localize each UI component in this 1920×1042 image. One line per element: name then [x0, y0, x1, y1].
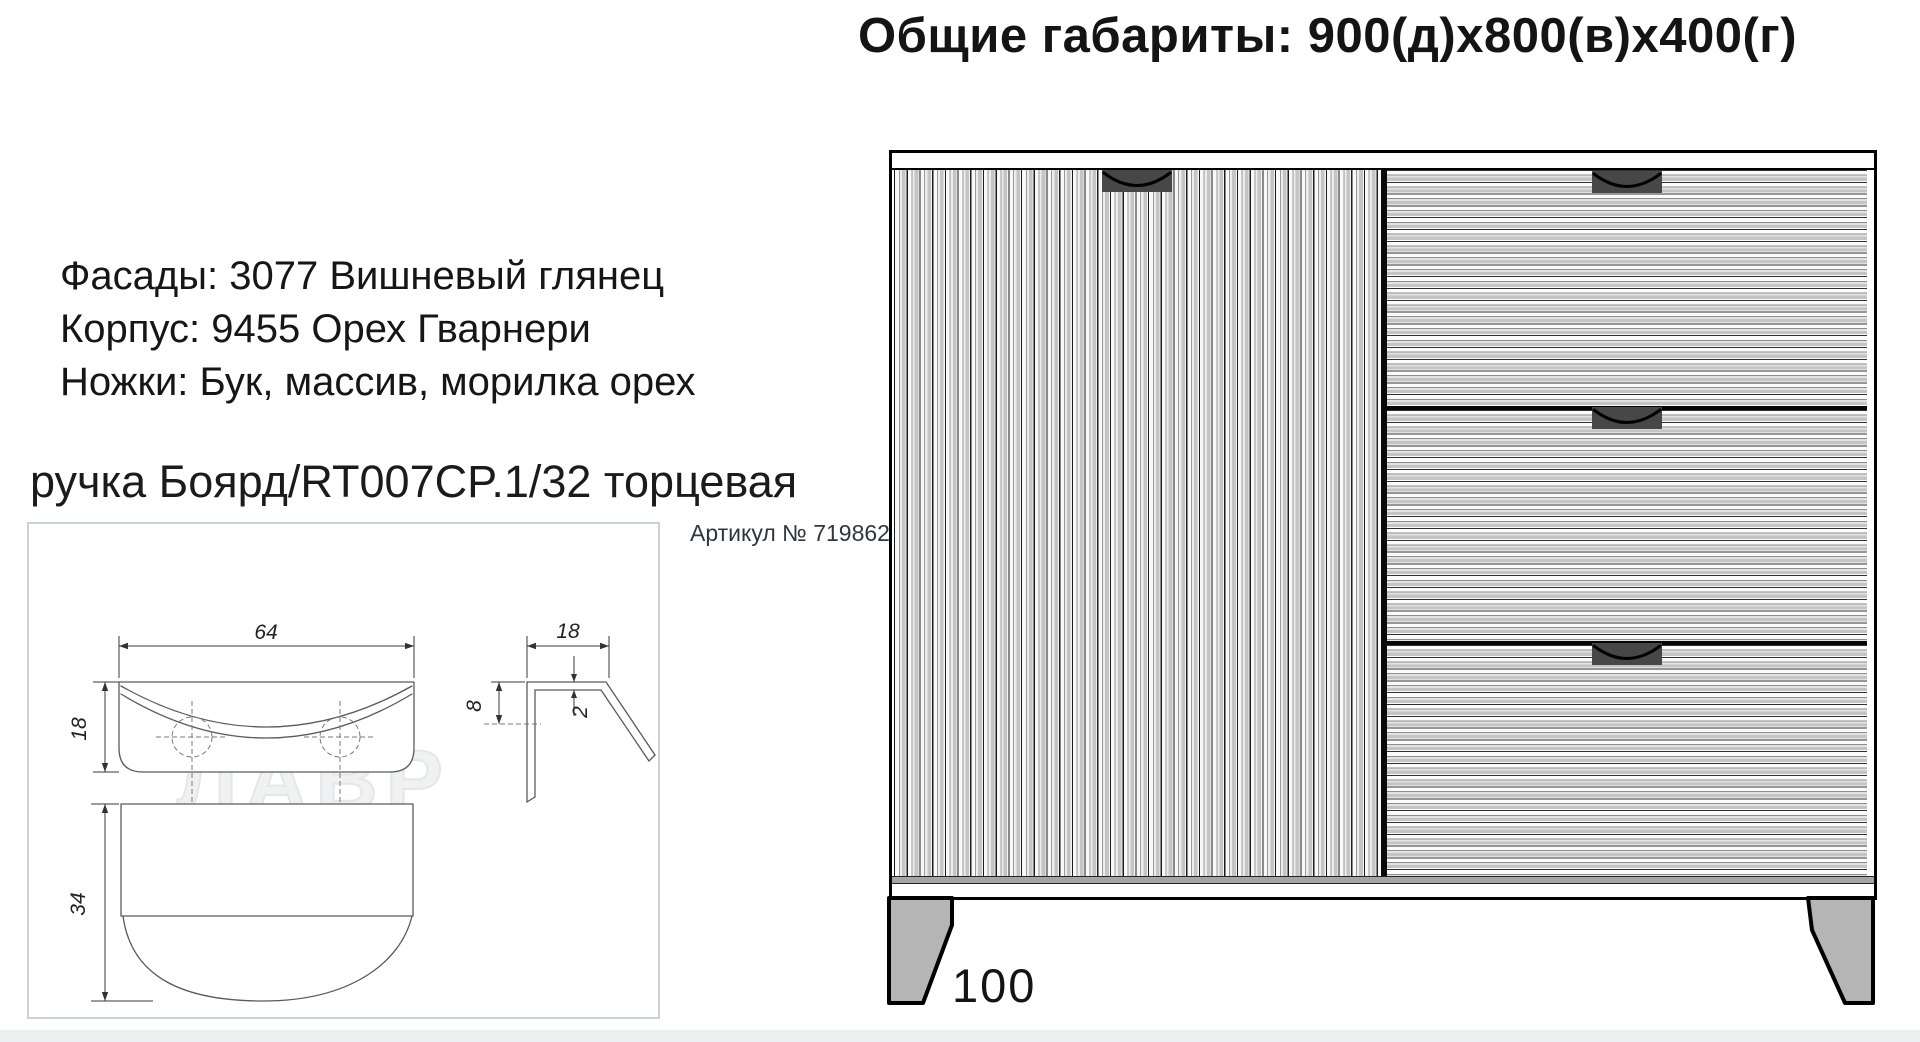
dim-arrow — [102, 682, 108, 691]
leg-height-label: 100 — [952, 958, 1036, 1013]
dim-label-2: 2 — [569, 706, 592, 719]
drawer2-recessed-handle — [1592, 407, 1662, 431]
drawer-stack — [1387, 170, 1867, 876]
spec-line-facades: Фасады: 3077 Вишневый глянец — [60, 250, 695, 303]
cabinet-top-panel — [892, 153, 1874, 170]
recessed-handle-icon — [1102, 170, 1172, 194]
handle-technical-drawing: 64 18 32 34 — [29, 524, 658, 1017]
dim-arrow — [571, 674, 577, 682]
spec-sheet-page: Общие габариты: 900(д)x800(в)x400(г) Фас… — [0, 0, 1920, 1042]
dim-arrow — [102, 992, 108, 1001]
dim-label-34: 34 — [67, 892, 90, 915]
recessed-handle-icon — [1592, 407, 1662, 431]
recessed-handle-icon — [1592, 643, 1662, 667]
handle-side-inner — [535, 690, 649, 761]
overall-dimensions-title: Общие габариты: 900(д)x800(в)x400(г) — [858, 8, 1797, 64]
cabinet-bottom-trim — [892, 876, 1874, 884]
handle-top-view-bowl — [123, 916, 412, 1001]
dim-arrow — [527, 643, 536, 649]
door-recessed-handle — [1102, 170, 1172, 194]
drawer1-recessed-handle — [1592, 171, 1662, 195]
dim-arrow — [600, 643, 609, 649]
dim-arrow — [496, 682, 502, 691]
page-bottom-strip — [0, 1030, 1920, 1042]
drawer3-recessed-handle — [1592, 643, 1662, 667]
handle-drawing-box: ЛАВР 64 18 — [27, 522, 660, 1019]
left-leg — [889, 898, 952, 1003]
dim-arrow — [102, 804, 108, 813]
dim-label-64: 64 — [254, 621, 277, 644]
dim-arrow — [496, 715, 502, 724]
handle-top-view-plate — [121, 804, 413, 916]
drawer-front-1 — [1387, 170, 1867, 406]
spec-line-body: Корпус: 9455 Орех Гварнери — [60, 303, 695, 356]
spec-line-legs: Ножки: Бук, массив, морилка орех — [60, 356, 695, 409]
right-leg — [1808, 898, 1873, 1003]
handle-side-tip-cap — [649, 755, 655, 761]
drawer-front-3 — [1387, 641, 1867, 876]
dim-arrow — [571, 690, 577, 698]
dim-arrow — [405, 643, 414, 649]
recessed-handle-icon — [1592, 171, 1662, 195]
dim-label-8: 8 — [463, 700, 486, 712]
dim-label-18-front: 18 — [68, 717, 91, 741]
article-number: Артикул № 719862 — [690, 520, 890, 547]
drawer-front-2 — [1387, 406, 1867, 641]
handle-model-title: ручка Боярд/RT007CP.1/32 торцевая — [30, 456, 797, 508]
handle-side-bottom-cap — [527, 797, 535, 802]
dim-label-18-side: 18 — [556, 620, 580, 643]
dim-arrow — [119, 643, 128, 649]
materials-spec-block: Фасады: 3077 Вишневый глянец Корпус: 945… — [60, 250, 695, 409]
cabinet-drawing — [889, 150, 1877, 900]
cabinet-door-front — [894, 170, 1381, 876]
dim-arrow — [102, 763, 108, 772]
